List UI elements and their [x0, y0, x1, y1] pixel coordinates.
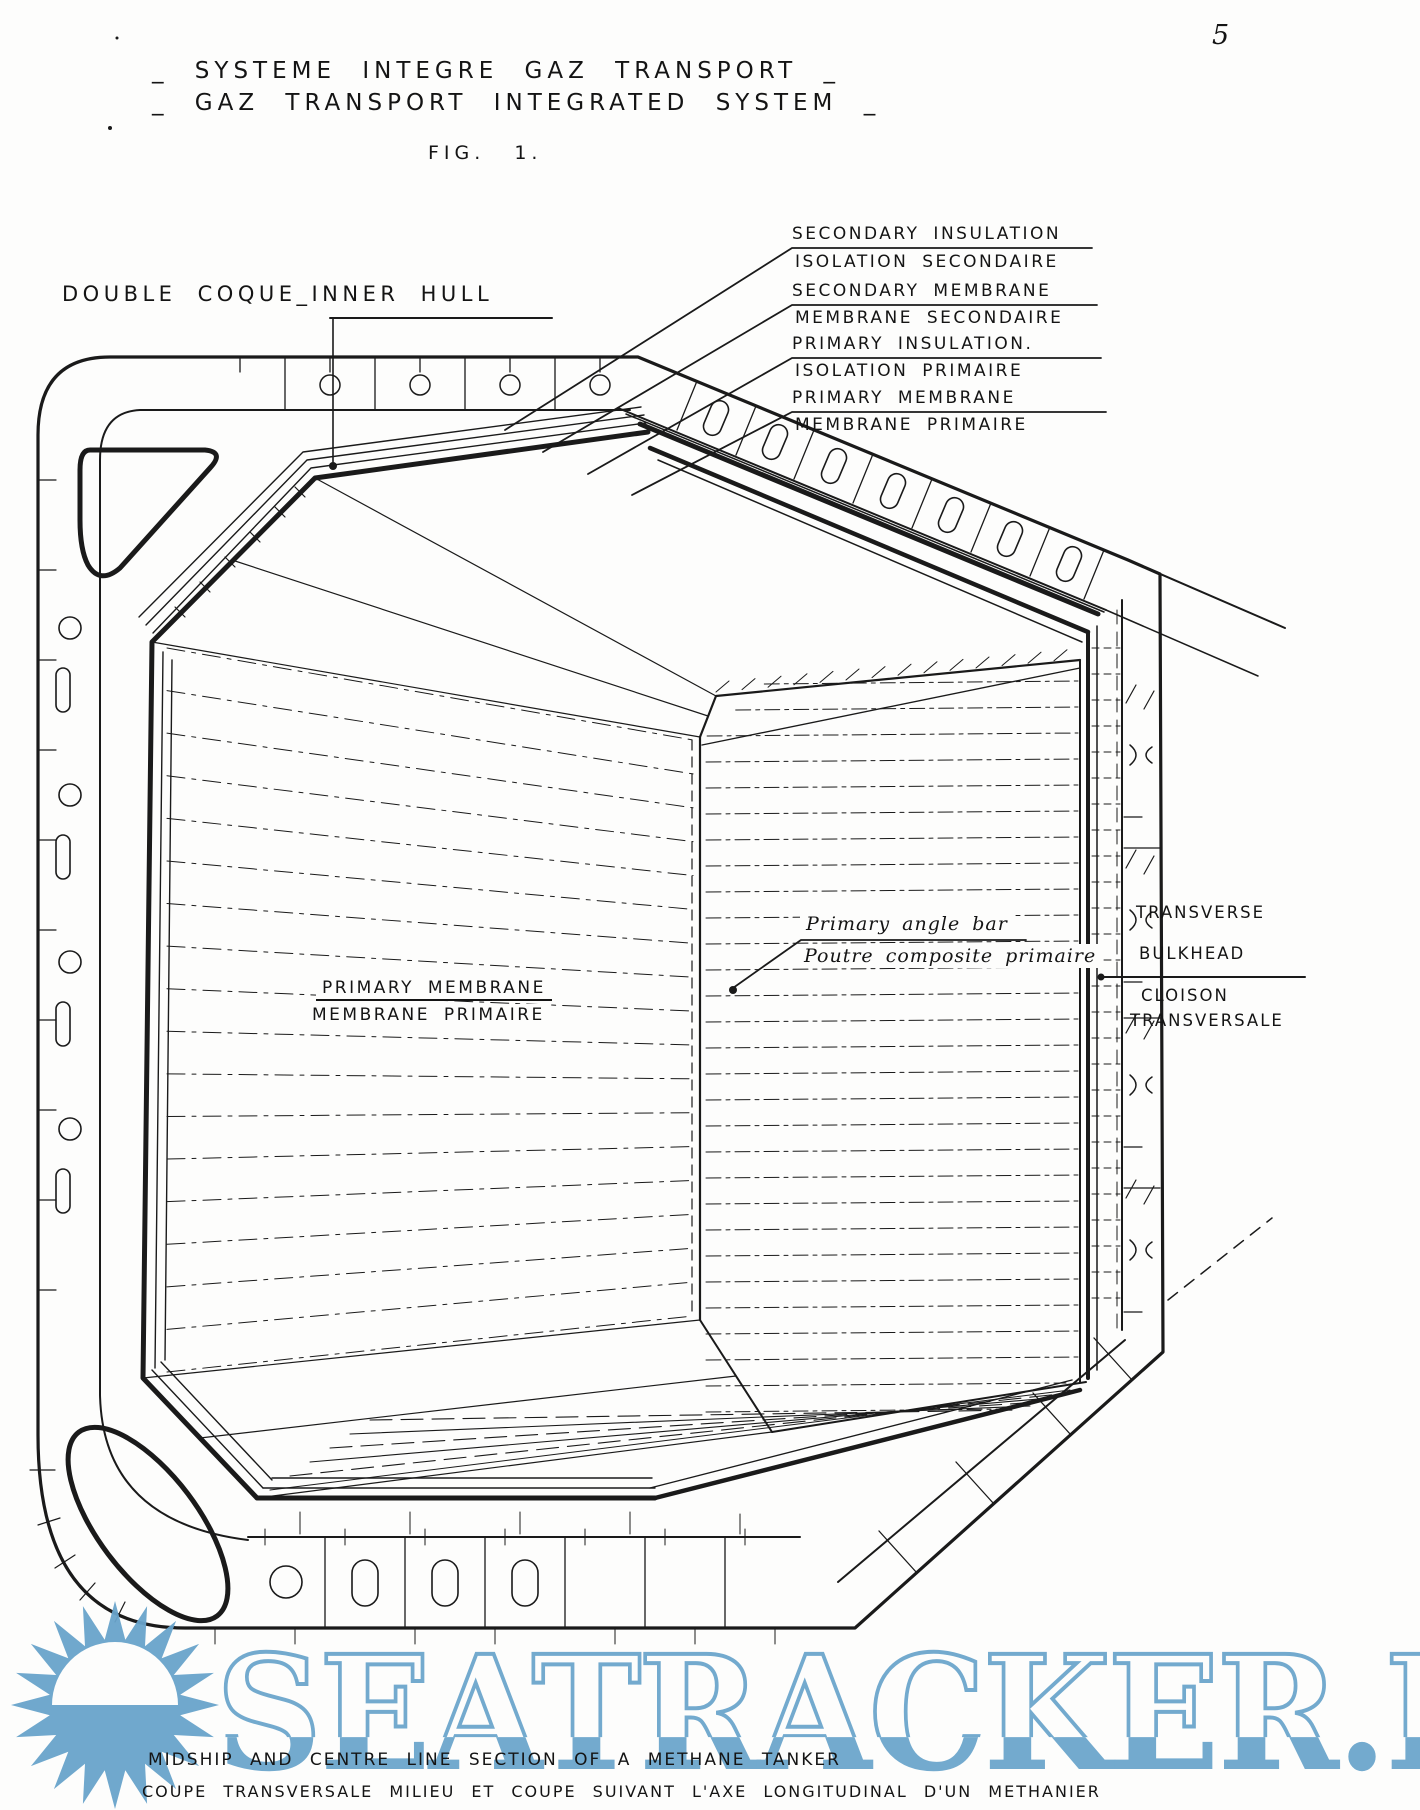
label-bulkhead-fr1: CLOISON — [1141, 986, 1229, 1005]
label-secondary-membrane-en: SECONDARY MEMBRANE — [792, 281, 1051, 301]
sun-icon — [0, 1600, 232, 1810]
hull-structure — [38, 37, 1285, 1646]
label-primary-membrane-layer-en: PRIMARY MEMBRANE — [792, 388, 1016, 408]
label-primary-insulation-en: PRIMARY INSULATION. — [792, 334, 1033, 354]
label-bulkhead-fr2: TRANSVERSALE — [1130, 1011, 1284, 1030]
watermark-text: SEATRACKER.RU SEATRACKER.RU — [216, 1636, 1420, 1806]
label-secondary-insulation-fr: ISOLATION SECONDAIRE — [795, 252, 1059, 272]
frame-holes — [30, 357, 1160, 1644]
label-primary-membrane-en: PRIMARY MEMBRANE — [316, 977, 552, 1001]
document-page: 5 _ SYSTEME INTEGRE GAZ TRANSPORT _ _ GA… — [0, 0, 1420, 1810]
label-primary-membrane-fr: MEMBRANE PRIMAIRE — [306, 1004, 551, 1026]
page-number: 5 — [1212, 20, 1229, 51]
hatching-bulkhead-strip — [1092, 648, 1120, 1298]
label-angle-bar-fr: Poutre composite primaire — [798, 944, 1102, 968]
label-primary-insulation-fr: ISOLATION PRIMAIRE — [795, 361, 1023, 381]
label-primary-membrane-layer-fr: MEMBRANE PRIMAIRE — [795, 415, 1028, 435]
title-english: _ GAZ TRANSPORT INTEGRATED SYSTEM _ — [152, 90, 880, 116]
caption-english: MIDSHIP AND CENTRE LINE SECTION OF A MET… — [148, 1750, 841, 1770]
label-inner-hull: DOUBLE COQUE_INNER HULL — [62, 282, 493, 306]
label-secondary-insulation-en: SECONDARY INSULATION — [792, 224, 1061, 244]
label-secondary-membrane-fr: MEMBRANE SECONDAIRE — [795, 308, 1063, 328]
caption-french: COUPE TRANSVERSALE MILIEU ET COUPE SUIVA… — [142, 1782, 1101, 1801]
title-french: _ SYSTEME INTEGRE GAZ TRANSPORT _ — [152, 58, 840, 84]
hatching-back-wall — [706, 681, 1078, 1412]
label-bulkhead-en1: TRANSVERSE — [1136, 903, 1265, 922]
hatching-ceiling-ticks — [716, 650, 1067, 692]
label-bulkhead-en2: BULKHEAD — [1139, 944, 1245, 963]
label-angle-bar-en: Primary angle bar — [800, 912, 1014, 936]
hatching-floor — [270, 1390, 1070, 1490]
figure-label: FIG. 1. — [428, 142, 542, 164]
